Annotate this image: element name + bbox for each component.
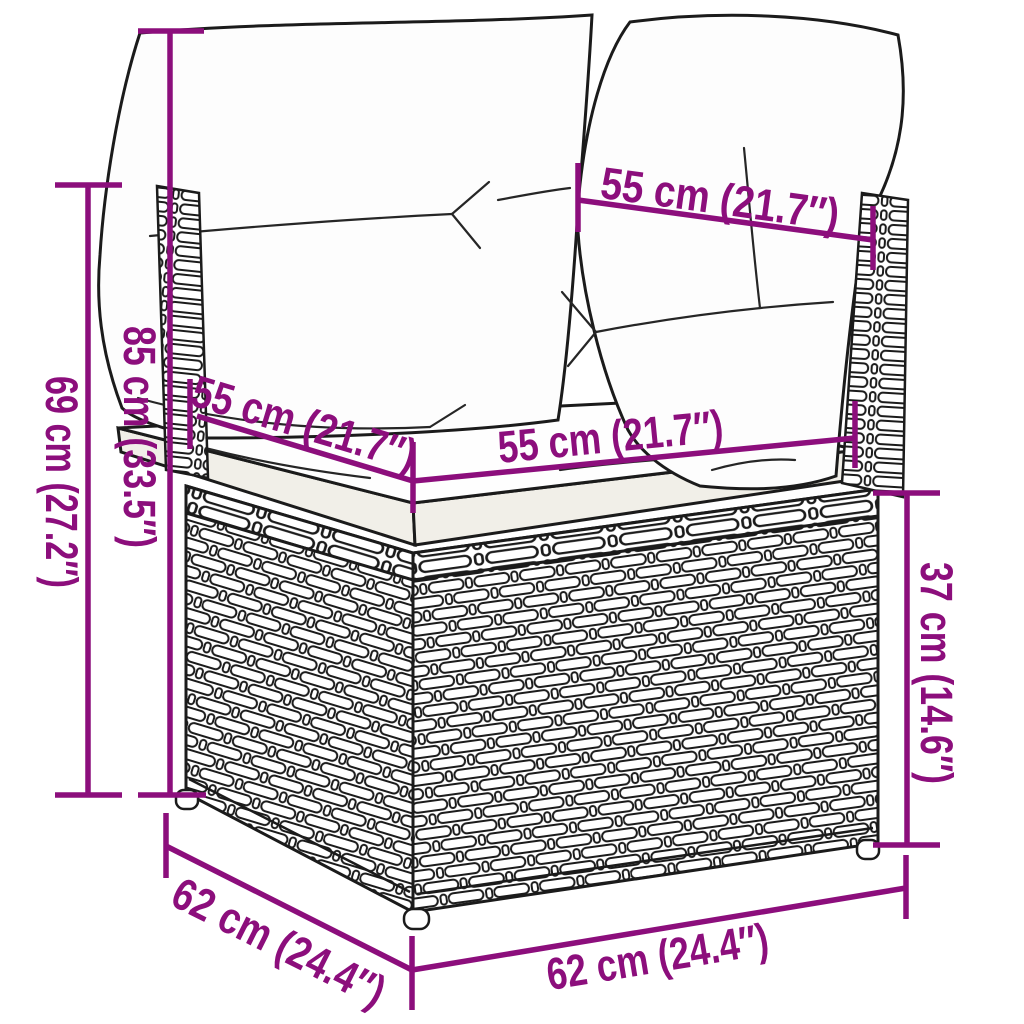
base-foot-front	[404, 909, 429, 929]
dimension-label-total-height: 85 cm (33.5″)	[114, 326, 165, 548]
dimension-diagram-canvas: 85 cm (33.5″) 69 cm (27.2″) 55 cm (21.7″…	[0, 0, 1024, 1024]
rattan-base	[176, 486, 879, 929]
dimension-label-base-width: 62 cm (24.4″)	[543, 913, 772, 1000]
dimension-label-backrest-height: 69 cm (27.2″)	[36, 376, 87, 588]
dimension-base-height: 37 cm (14.6″)	[873, 493, 962, 845]
back-cushion-right-crease	[568, 332, 596, 366]
dimension-diagram: 85 cm (33.5″) 69 cm (27.2″) 55 cm (21.7″…	[0, 0, 1024, 1024]
dimension-label-base-height: 37 cm (14.6″)	[911, 562, 962, 784]
